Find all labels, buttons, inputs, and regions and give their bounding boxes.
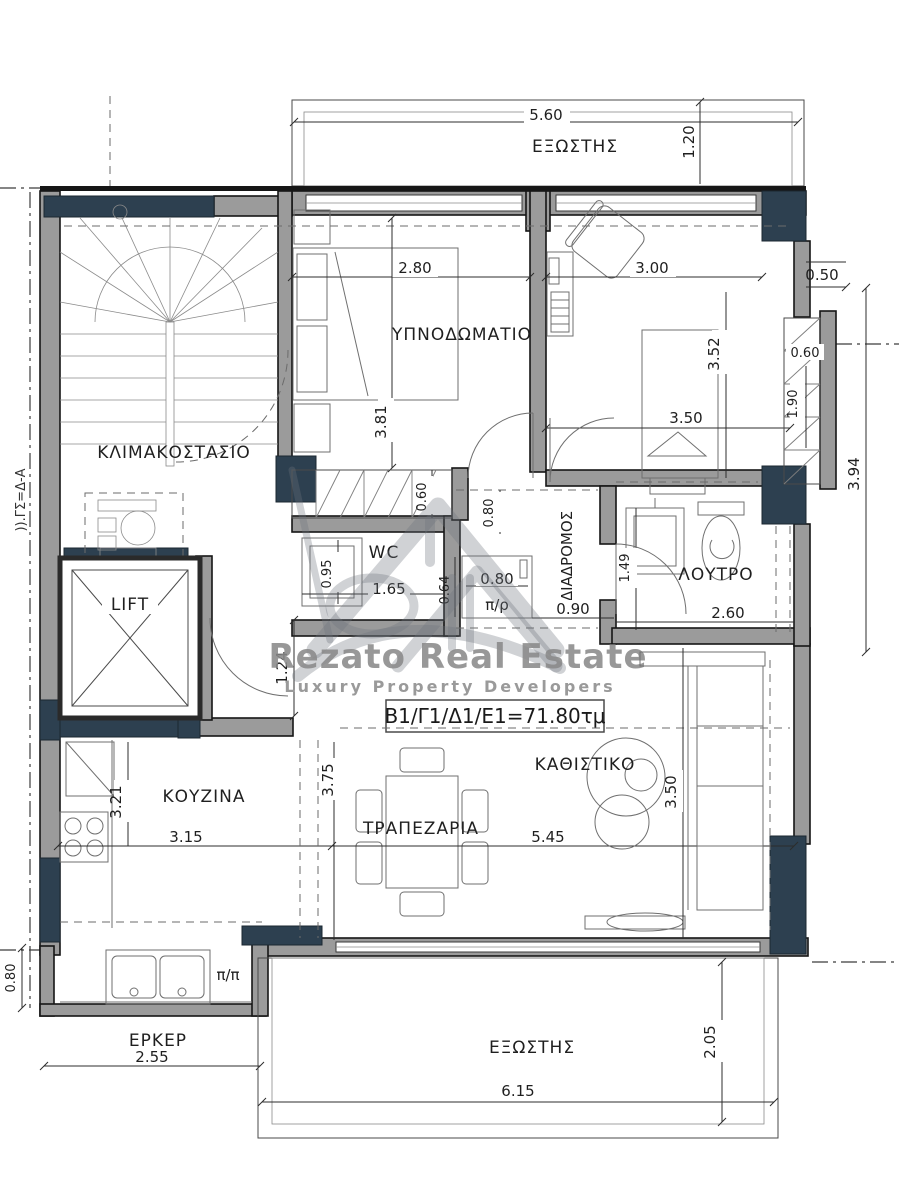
dim-balcony-top-depth: 1.20 bbox=[680, 125, 698, 158]
dim-living-height: 3.50 bbox=[662, 775, 680, 808]
staircase: ΚΛΙΜΑΚΟΣΤΑΣΙΟ bbox=[60, 205, 288, 565]
floor-plan-page: 5.60 ΕΞΩΣΤΗΣ 1.20 bbox=[0, 0, 900, 1200]
dim-living-width: 5.45 bbox=[531, 828, 564, 846]
dining-label: ΤΡΑΠΕΖΑΡΙΑ bbox=[362, 819, 479, 839]
dim-bedroom2-width: 3.00 bbox=[635, 259, 668, 277]
watermark-text: Rezato Real Estate Luxury Property Devel… bbox=[268, 637, 647, 732]
watermark-tagline: Luxury Property Developers bbox=[284, 677, 615, 696]
dim-balcony-bottom-depth: 2.05 bbox=[701, 1025, 719, 1058]
balcony-top-label: ΕΞΩΣΤΗΣ bbox=[532, 137, 618, 157]
dim-bay-depth: 0.80 bbox=[4, 964, 19, 993]
dim-balcony-bottom-width: 6.15 bbox=[501, 1082, 534, 1100]
living-label: ΚΑΘΙΣΤΙΚΟ bbox=[535, 755, 636, 775]
dim-closet-height: 1.90 bbox=[786, 390, 801, 419]
dim-top-width: 5.60 bbox=[529, 106, 562, 124]
dim-bay-width: 2.55 bbox=[135, 1048, 168, 1066]
dim-bedroom2-height: 3.52 bbox=[705, 337, 723, 370]
bay-pp-label: π/π bbox=[216, 966, 239, 984]
dim-kitchen-height: 3.21 bbox=[107, 785, 125, 818]
balcony-bottom-label: ΕΞΩΣΤΗΣ bbox=[489, 1038, 575, 1058]
sofa bbox=[640, 652, 765, 910]
balcony-top: 5.60 ΕΞΩΣΤΗΣ 1.20 bbox=[290, 98, 804, 186]
dim-bathroom-width: 2.60 bbox=[711, 604, 744, 622]
bathroom-label: ΛΟΥΤΡΟ bbox=[678, 565, 753, 585]
dim-bedroom2-inner-width: 3.50 bbox=[669, 409, 702, 427]
dim-right-offset: 0.50 bbox=[805, 266, 838, 284]
balcony-bottom: ΕΞΩΣΤΗΣ 6.15 2.05 bbox=[258, 958, 778, 1138]
dim-kitchen-width: 3.15 bbox=[169, 828, 202, 846]
dim-dining-height: 3.75 bbox=[319, 763, 337, 796]
lift: LIFT bbox=[60, 558, 200, 718]
unit-area-label: Β1/Γ1/Δ1/Ε1=71.80τμ bbox=[384, 704, 605, 728]
dim-bedroom-width: 2.80 bbox=[398, 259, 431, 277]
dim-corridor-top: 0.80 bbox=[482, 499, 497, 528]
bedroom-label: ΥΠΝΟΔΩΜΑΤΙΟ bbox=[391, 325, 532, 345]
stove bbox=[60, 812, 108, 862]
dim-wc-height: 0.95 bbox=[320, 560, 335, 589]
dim-right-side-height: 3.94 bbox=[845, 457, 863, 490]
dim-bedroom-height: 3.81 bbox=[372, 405, 390, 438]
dim-corridor-width: 0.90 bbox=[556, 600, 589, 618]
tv-bench bbox=[585, 913, 685, 931]
lift-label: LIFT bbox=[111, 595, 149, 615]
floor-plan-drawing: 5.60 ΕΞΩΣΤΗΣ 1.20 bbox=[0, 0, 900, 1200]
dim-closet-width: 0.60 bbox=[791, 346, 820, 361]
corridor-label: ΔΙΑΔΡΟΜΟΣ bbox=[558, 511, 576, 601]
kitchen-label: ΚΟΥΖΙΝΑ bbox=[163, 787, 246, 807]
bedroom-1: ΥΠΝΟΔΩΜΑΤΙΟ 2.80 3.81 bbox=[64, 210, 792, 478]
kitchen: ΚΟΥΖΙΝΑ 3.21 3.15 3.75 bbox=[54, 740, 341, 940]
watermark-brand: Rezato Real Estate bbox=[268, 637, 647, 677]
dim-bathroom-height: 1.49 bbox=[618, 554, 633, 583]
staircase-label: ΚΛΙΜΑΚΟΣΤΑΣΙΟ bbox=[97, 443, 251, 463]
section-mark-label: )).ΓΣ=Δ-Α bbox=[14, 468, 29, 531]
